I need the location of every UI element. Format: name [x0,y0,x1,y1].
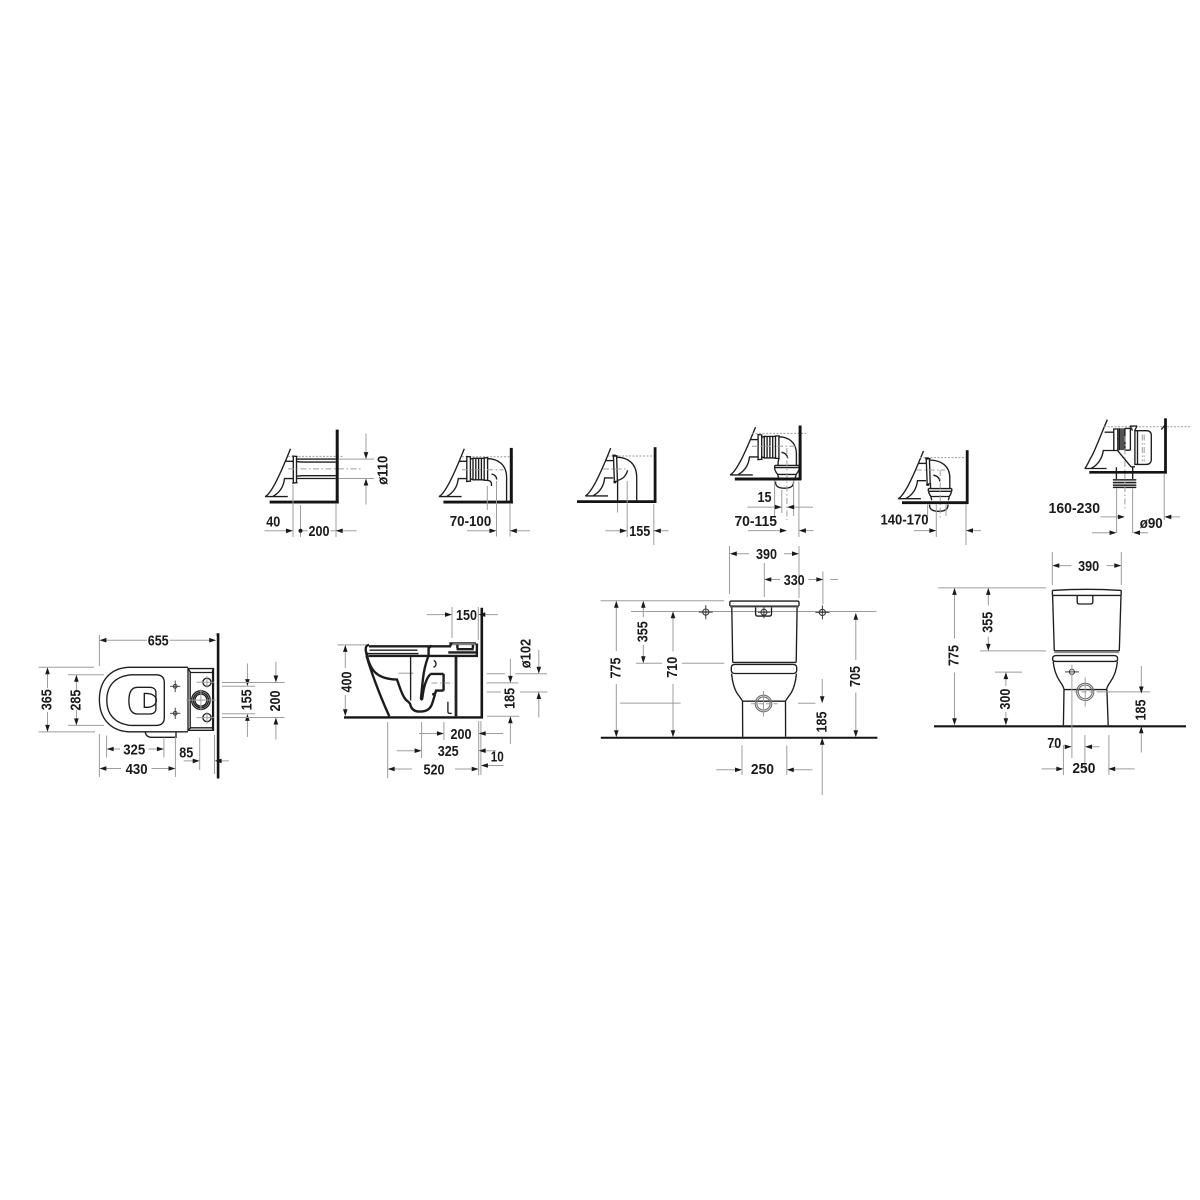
svg-text:330: 330 [784,572,805,589]
svg-text:40: 40 [266,513,280,530]
svg-text:10: 10 [491,749,504,766]
svg-text:140-170: 140-170 [881,512,929,529]
svg-text:200: 200 [451,726,472,743]
svg-text:70-115: 70-115 [734,513,777,530]
svg-text:390: 390 [1078,558,1099,575]
svg-text:250: 250 [751,761,774,778]
svg-text:ø102: ø102 [518,639,535,669]
svg-text:655: 655 [148,633,169,650]
svg-text:365: 365 [39,689,56,710]
svg-text:520: 520 [424,761,445,778]
svg-text:200: 200 [267,691,284,712]
svg-text:155: 155 [239,689,256,710]
svg-text:15: 15 [758,489,772,506]
svg-text:ø90: ø90 [1140,515,1163,532]
svg-text:70: 70 [1047,735,1061,752]
svg-text:185: 185 [1133,700,1150,721]
svg-text:430: 430 [126,761,148,778]
svg-text:705: 705 [847,666,864,687]
svg-text:355: 355 [980,612,997,633]
svg-text:390: 390 [756,546,777,563]
svg-text:775: 775 [608,658,625,679]
svg-text:70-100: 70-100 [450,513,492,530]
svg-text:775: 775 [946,645,963,666]
svg-text:325: 325 [438,743,459,760]
svg-text:155: 155 [629,523,650,540]
svg-text:185: 185 [813,712,830,733]
svg-text:200: 200 [309,523,330,540]
svg-text:355: 355 [635,621,652,642]
svg-text:285: 285 [68,690,85,711]
svg-text:250: 250 [1072,760,1095,777]
svg-text:300: 300 [997,689,1014,710]
svg-text:150: 150 [456,607,477,624]
svg-text:400: 400 [338,672,355,693]
svg-text:185: 185 [502,688,519,709]
svg-text:325: 325 [123,741,145,758]
svg-text:710: 710 [664,657,681,678]
svg-text:ø110: ø110 [375,456,392,485]
svg-text:160-230: 160-230 [1049,500,1101,517]
svg-text:85: 85 [179,745,193,762]
